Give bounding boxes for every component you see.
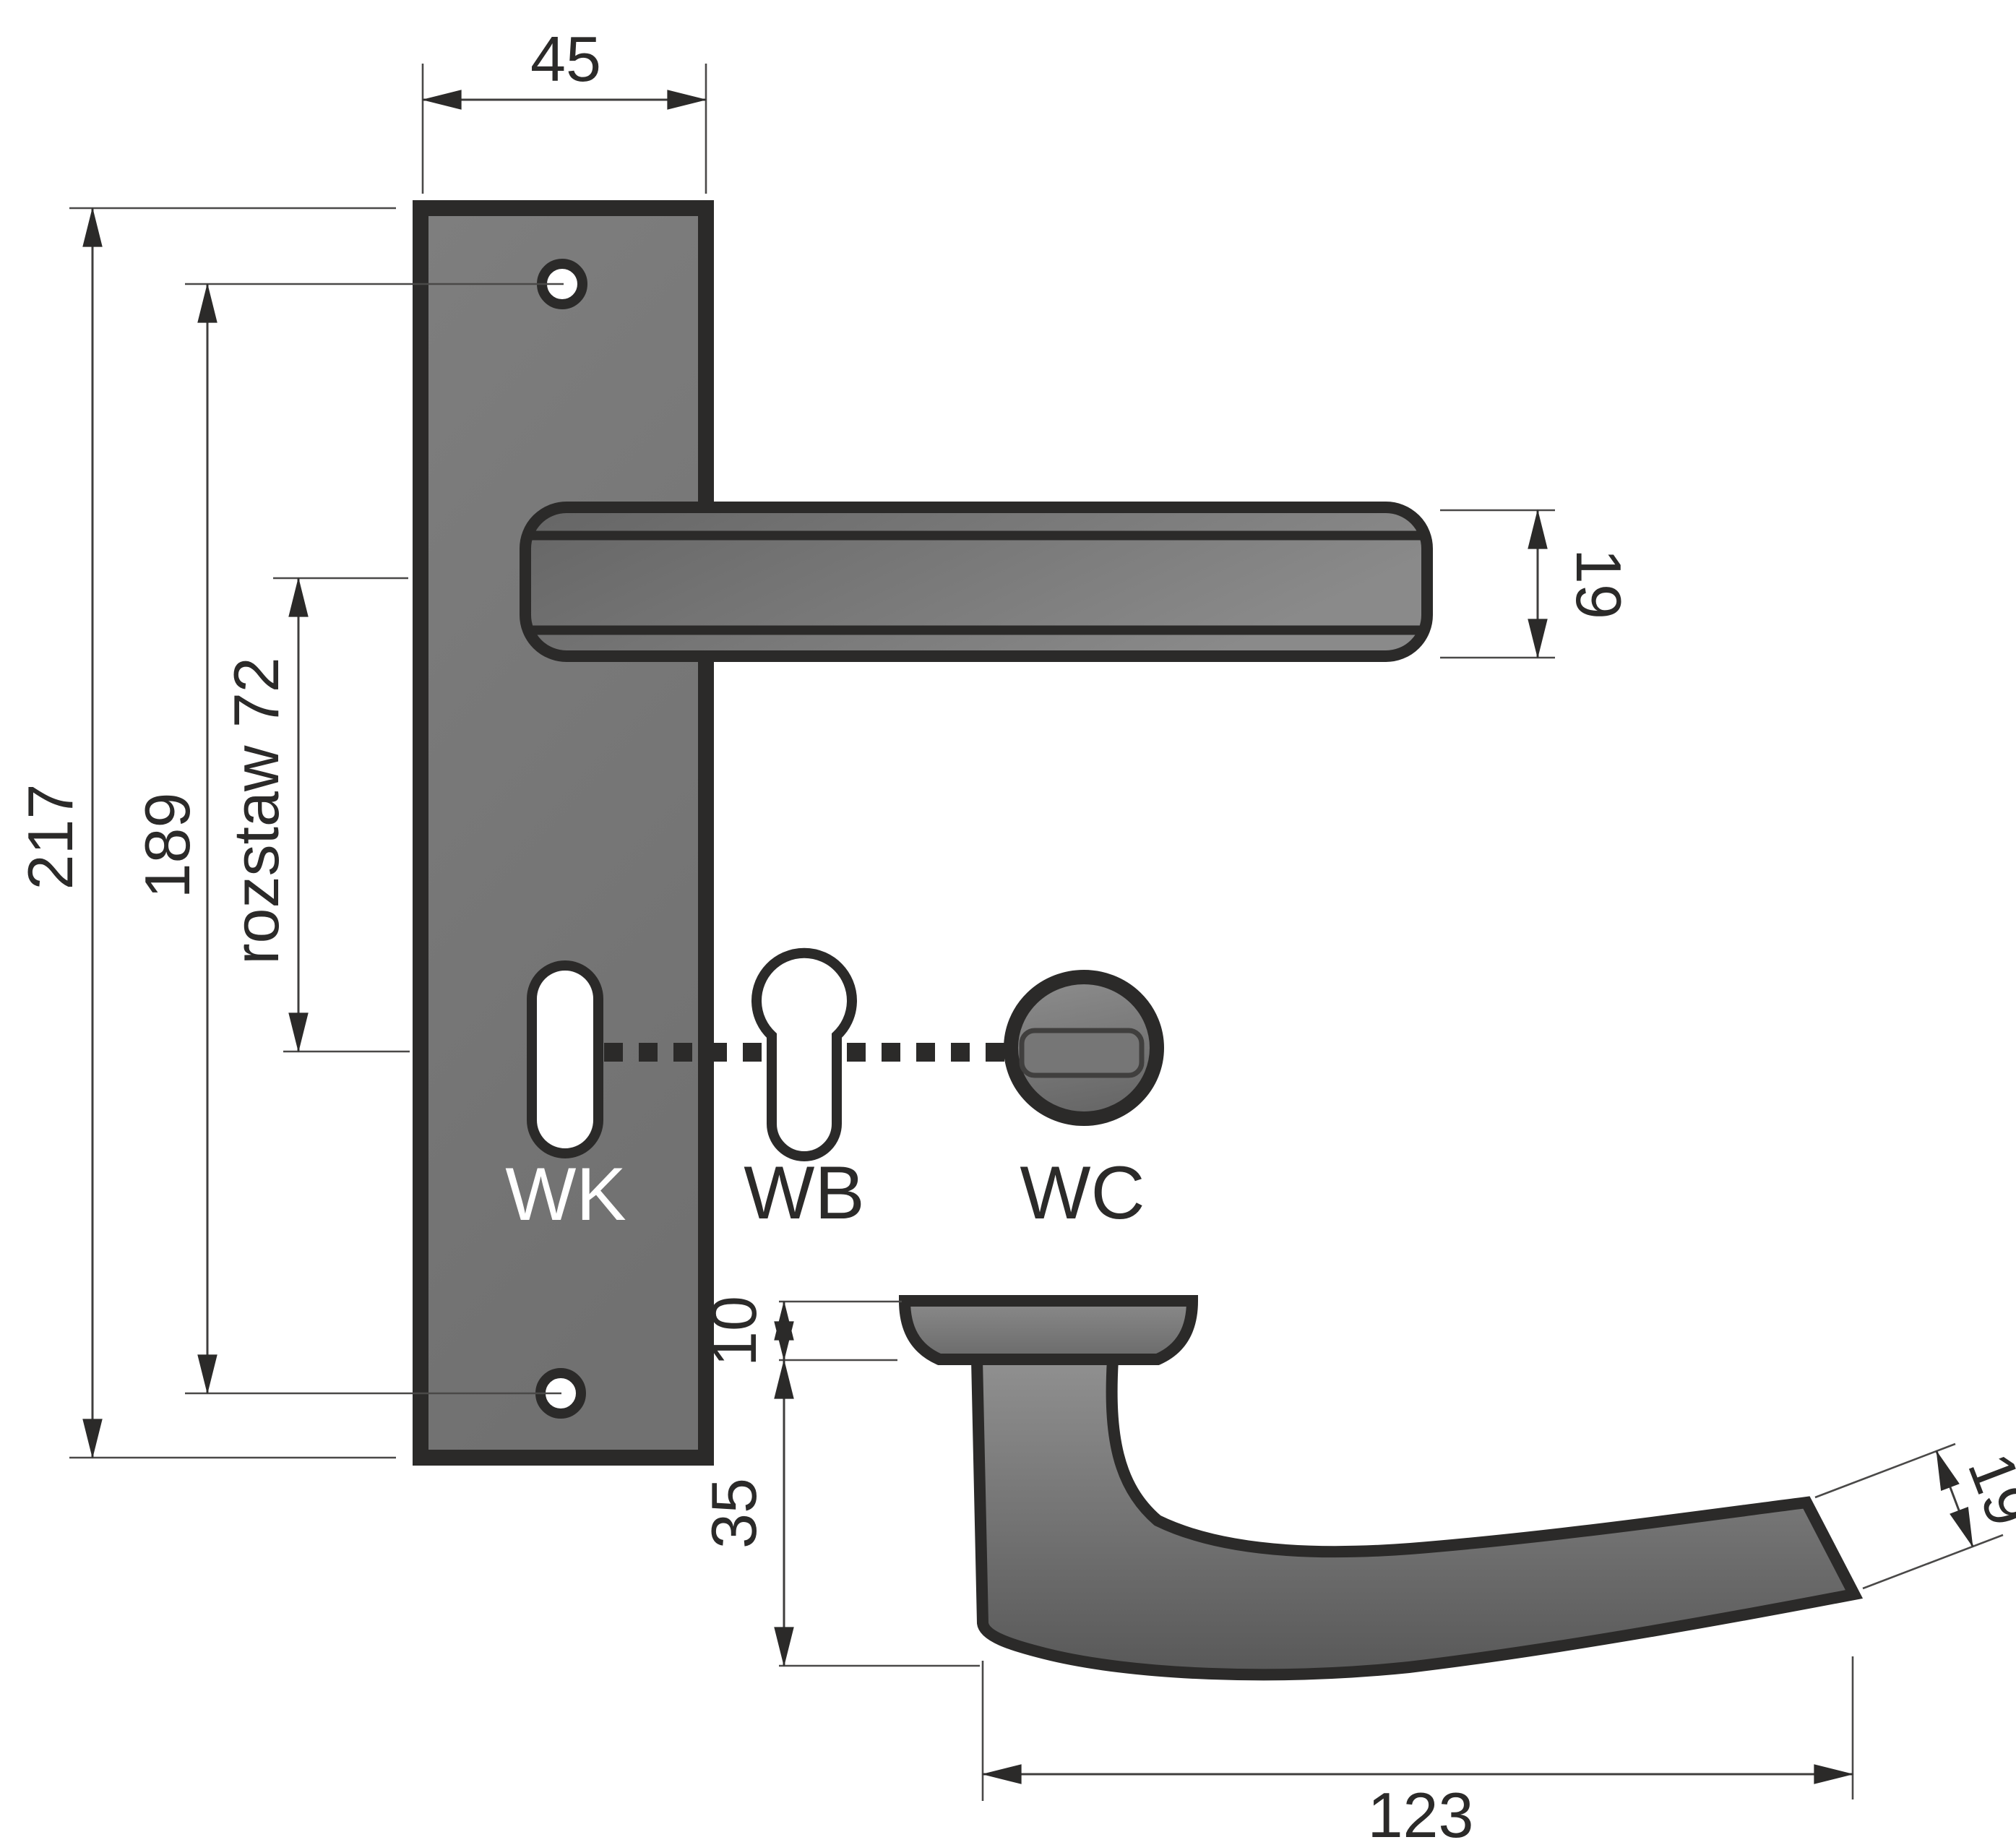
dim-plate-total-height-value: 217 <box>14 784 86 890</box>
dim-rosette-height: 10 <box>698 1296 902 1367</box>
dim-neck-height-value: 35 <box>698 1478 770 1549</box>
cylinder-hole-wb <box>757 953 852 1156</box>
wc-knob-slot <box>1022 1031 1142 1075</box>
label-wk: WK <box>505 1153 626 1237</box>
dim-plate-total-height: 217 <box>14 208 396 1458</box>
dim-screw-hole-spacing-value: 189 <box>132 793 203 899</box>
dim-neck-height: 35 <box>698 1360 980 1666</box>
lever-bar-front-view <box>525 507 1427 656</box>
label-wc: WC <box>1020 1151 1145 1235</box>
dim-lever-thickness-value: 19 <box>1563 549 1634 619</box>
door-handle-technical-drawing: 45 217 189 rozstaw 72 19 10 35 <box>0 0 2016 1845</box>
dim-axis-spacing: rozstaw 72 <box>220 578 410 1051</box>
handle-side-profile <box>977 1359 1854 1674</box>
backplate-front-view <box>421 208 706 1458</box>
rosette-side-profile <box>905 1301 1192 1359</box>
technical-drawing-page: 45 217 189 rozstaw 72 19 10 35 <box>0 0 2016 1845</box>
dim-handle-length-value: 123 <box>1368 1779 1474 1845</box>
turn-knob-wc <box>1011 977 1157 1119</box>
dim-axis-spacing-value: rozstaw 72 <box>220 657 292 965</box>
dim-plate-width-value: 45 <box>530 23 601 95</box>
keyhole-wk <box>532 965 598 1153</box>
dim-handle-length: 123 <box>983 1656 1853 1845</box>
dim-plate-width: 45 <box>423 23 706 194</box>
label-wb: WB <box>744 1151 865 1235</box>
dim-lever-thickness: 19 <box>1440 510 1634 658</box>
dim-rosette-height-value: 10 <box>698 1296 770 1367</box>
